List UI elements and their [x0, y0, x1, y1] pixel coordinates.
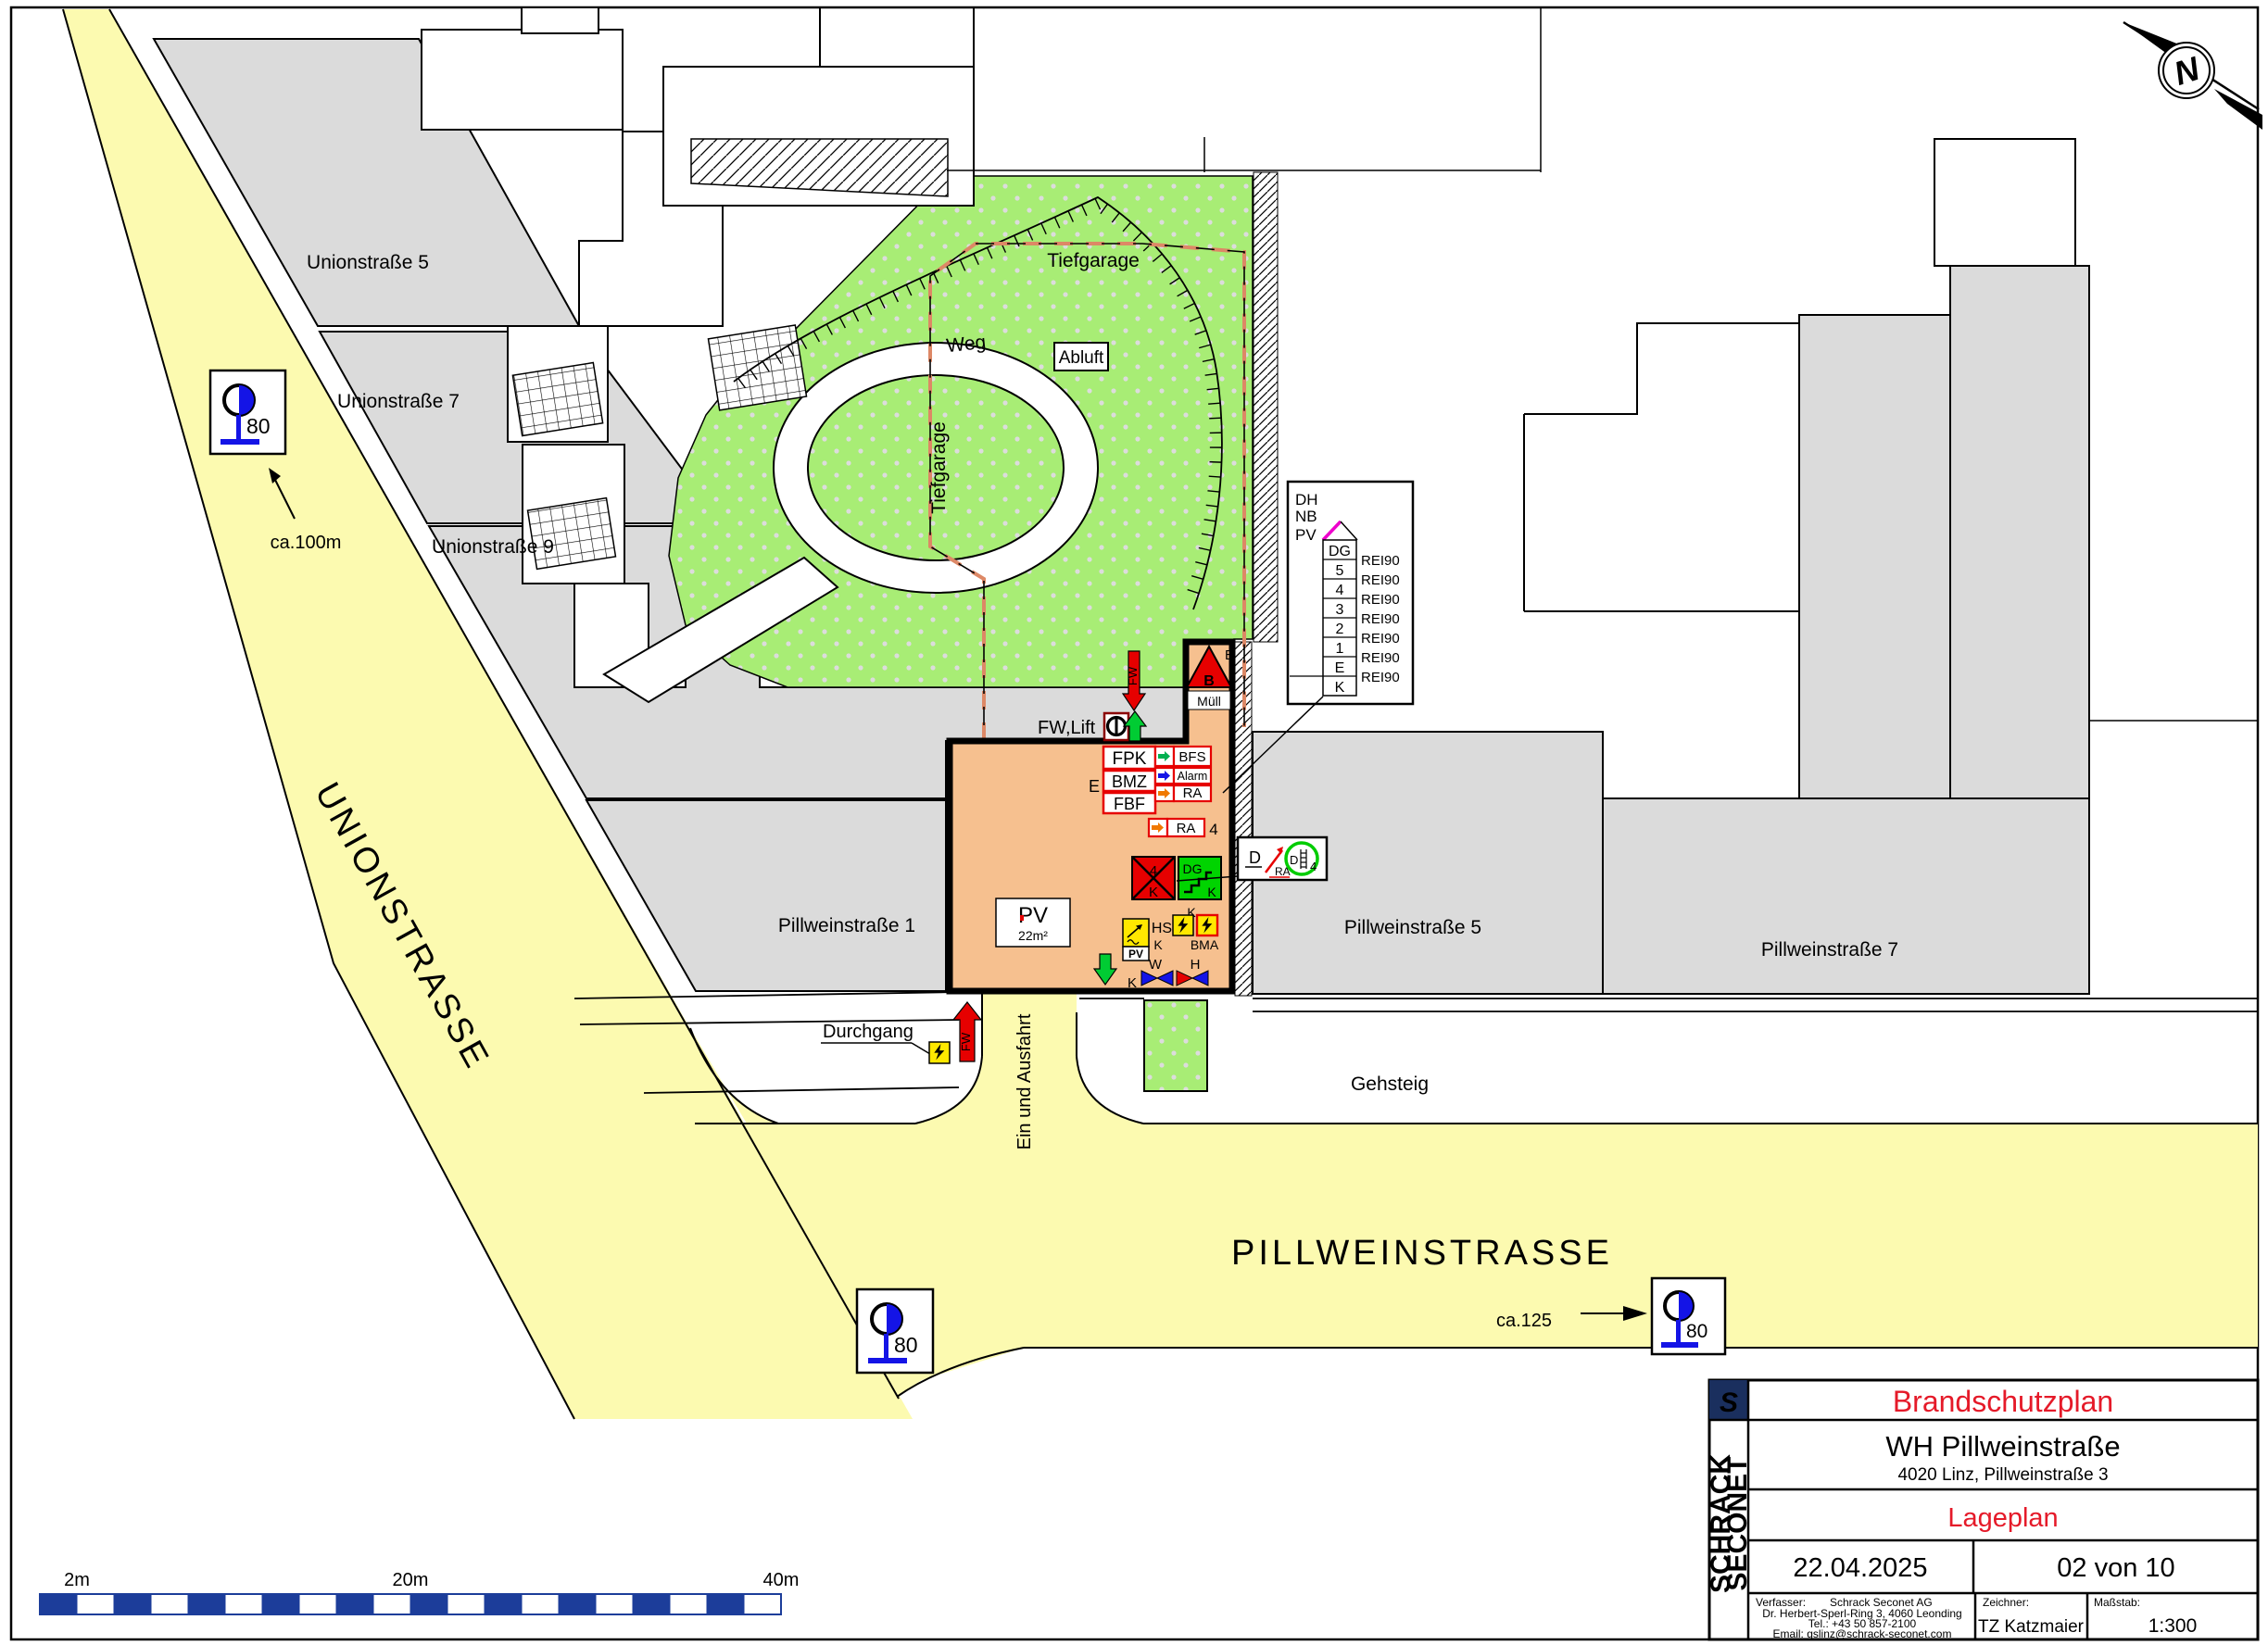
plot-label-u7: Unionstraße 7 [337, 391, 460, 412]
scale-bar: 2m 20m 40m [40, 1570, 799, 1614]
brand-seconet: SECONET [1722, 1456, 1753, 1590]
hydrant-3-size: 80 [1686, 1321, 1707, 1342]
hydrant-1-size: 80 [246, 414, 271, 438]
scale-value: 1:300 [2148, 1615, 2198, 1637]
drawer-label: Zeichner: [1983, 1596, 2029, 1609]
hs-label: HS [1152, 921, 1172, 936]
svg-text:REI90: REI90 [1361, 592, 1400, 608]
plot-label-p7: Pillweinstraße 7 [1761, 939, 1898, 961]
legend-d-count: 4 [1310, 860, 1317, 873]
alarm-label: Alarm [1178, 770, 1208, 783]
page-number: 02 von 10 [2057, 1553, 2174, 1583]
svg-text:3: 3 [1336, 602, 1344, 618]
svg-text:K: K [1335, 680, 1345, 696]
plot-label-u9: Unionstraße 9 [432, 536, 554, 558]
svg-text:E: E [1335, 660, 1345, 676]
x-box-k: K [1149, 885, 1158, 900]
hs-k-label: K [1153, 937, 1163, 952]
svg-text:REI90: REI90 [1361, 670, 1400, 685]
hydrant-1-distance: ca.100m [271, 533, 342, 553]
author-email: Email: gslinz@schrack-seconet.com [1773, 1627, 1952, 1640]
abluft-box: Abluft [1054, 343, 1108, 370]
muell-label: Müll [1197, 694, 1221, 709]
fw-lift-label: FW,Lift [1038, 718, 1096, 738]
gehsteig-label: Gehsteig [1351, 1074, 1429, 1095]
fw-entry-arrow-icon [953, 1002, 981, 1061]
drawer-name: TZ Katzmaier [1978, 1617, 2085, 1637]
scale-label: Maßstab: [2094, 1596, 2140, 1609]
hydrant-3-distance: ca.125 [1496, 1311, 1552, 1331]
plot-label-p1: Pillweinstraße 1 [778, 915, 915, 936]
scale-40m: 40m [763, 1570, 800, 1590]
svg-text:5: 5 [1336, 563, 1344, 579]
pv-inverter-symbol: PV [1123, 919, 1149, 961]
ein-und-ausfahrt-label: Ein und Ausfahrt [1014, 1013, 1035, 1149]
valve-k-label: K [1128, 975, 1137, 991]
scale-2m: 2m [64, 1570, 90, 1590]
scale-20m: 20m [393, 1570, 429, 1590]
brandschutzplan-page: B E Müll FW,Lift FW E FPK BMZ FBF BFS [0, 0, 2268, 1645]
drawing-date: 22.04.2025 [1793, 1553, 1927, 1583]
project-title: WH Pillweinstraße [1885, 1430, 2120, 1463]
pv-area-size: 22m² [1018, 928, 1048, 943]
svg-text:REI90: REI90 [1361, 553, 1400, 569]
title-block: S SCHRACK SECONET Brandschutzplan WH Pil… [1706, 1380, 2258, 1640]
valve-h-label: H [1191, 957, 1201, 973]
tiefgarage-label-rotated: Tiefgarage [928, 421, 950, 514]
legend-d-circle: D [1290, 853, 1298, 867]
building-pillweinstrasse-7 [1603, 798, 2089, 994]
section-rating-labels: REI90 REI90 REI90 REI90 REI90 REI90 REI9… [1361, 553, 1400, 685]
fw-entry-label: FW [959, 1032, 973, 1051]
north-arrow: N [2123, 22, 2262, 130]
bma-label: BMA [1191, 937, 1219, 952]
abluft-label: Abluft [1059, 348, 1104, 368]
sheet-name: Lageplan [1947, 1503, 2058, 1533]
site-plan-drawing: B E Müll FW,Lift FW E FPK BMZ FBF BFS [0, 0, 2268, 1645]
pv-small-label: PV [1128, 948, 1143, 961]
x-box-count: 4 [1150, 863, 1157, 879]
dg-k-label: K [1207, 885, 1216, 899]
bmz-label: BMZ [1112, 772, 1147, 791]
ra2-count: 4 [1209, 821, 1217, 838]
schrack-logo-letter: S [1720, 1388, 1738, 1418]
ra2-label: RA [1177, 821, 1196, 836]
valve-w-label: W [1149, 957, 1163, 973]
section-pv-label: PV [1295, 526, 1317, 544]
tiefgarage-label: Tiefgarage [1047, 250, 1140, 271]
svg-text:4: 4 [1336, 583, 1344, 598]
pillweinstrasse-label: PILLWEINSTRASSE [1231, 1234, 1613, 1273]
entrance-e-label: E [1089, 777, 1100, 796]
svg-text:REI90: REI90 [1361, 631, 1400, 647]
section-nb-label: NB [1295, 508, 1317, 525]
plot-label-p5: Pillweinstraße 5 [1344, 917, 1481, 938]
plot-label-u5: Unionstraße 5 [307, 252, 429, 273]
weg-label: Weg [945, 332, 987, 357]
firewall-hatch-north [1254, 172, 1278, 642]
section-dh-label: DH [1295, 491, 1318, 509]
shaft-x-box: 4 K [1132, 857, 1175, 900]
ra-label: RA [1183, 785, 1203, 801]
fpk-label: FPK [1113, 749, 1147, 769]
svg-text:REI90: REI90 [1361, 572, 1400, 588]
durchgang-label: Durchgang [823, 1022, 913, 1042]
svg-text:REI90: REI90 [1361, 650, 1400, 666]
alarm-triangle-label: B [1203, 673, 1215, 689]
bfs-label: BFS [1178, 749, 1205, 765]
fbf-label: FBF [1114, 795, 1145, 813]
fw-down-label: FW [1126, 666, 1140, 685]
project-address: 4020 Linz, Pillweinstraße 3 [1897, 1465, 2108, 1485]
dg-label: DG [1183, 861, 1203, 876]
exit-e-label: E [1225, 647, 1234, 663]
svg-text:REI90: REI90 [1361, 611, 1400, 627]
svg-text:2: 2 [1336, 622, 1344, 637]
svg-text:DG: DG [1329, 544, 1351, 559]
doc-type-title: Brandschutzplan [1893, 1385, 2113, 1418]
legend-d-label: D [1249, 848, 1261, 867]
hydrant-2: 80 [857, 1289, 933, 1373]
pv-area-box: PV 22m² [996, 898, 1070, 947]
green-patch-south [1144, 1000, 1207, 1091]
hydrant-2-size: 80 [894, 1333, 918, 1357]
durchgang-group: Durchgang FW [821, 1002, 981, 1063]
svg-text:1: 1 [1336, 641, 1344, 657]
